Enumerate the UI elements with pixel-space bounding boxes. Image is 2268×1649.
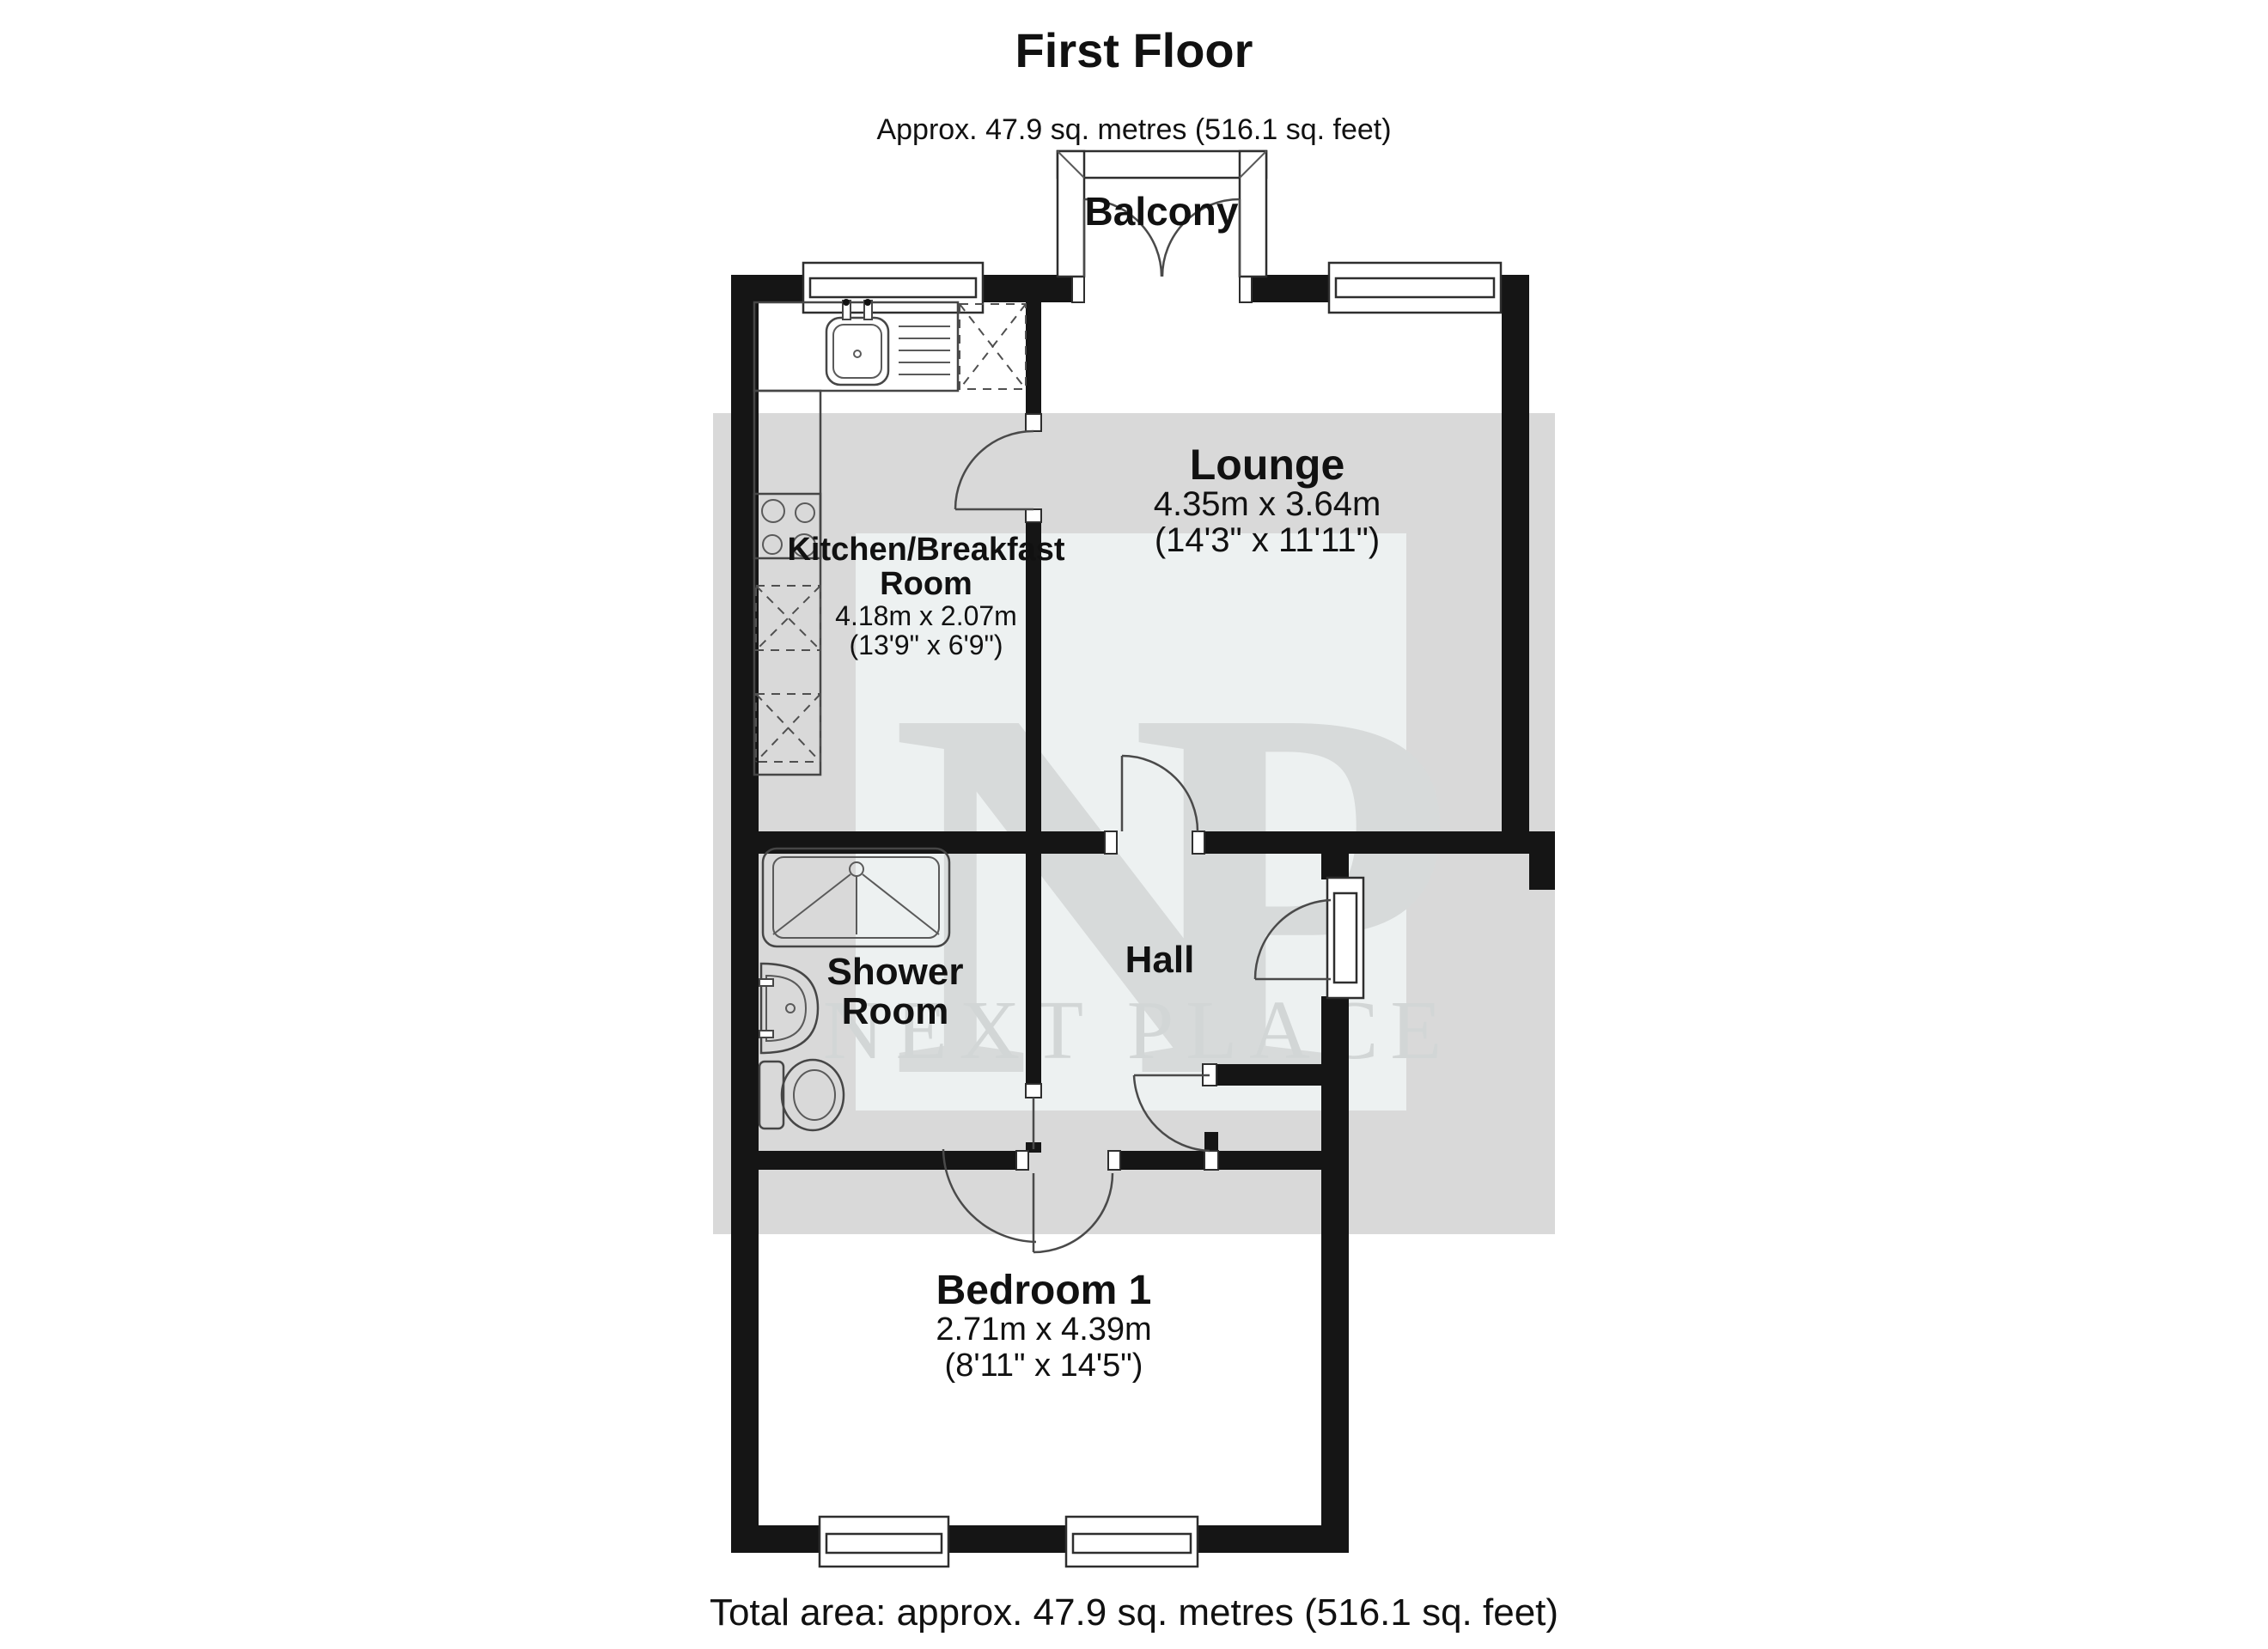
lounge-window [1329,263,1501,313]
shower-tray [763,849,949,946]
bedroom-window-2 [1066,1517,1198,1567]
page-title: First Floor [1015,23,1253,77]
svg-text:Bedroom 1: Bedroom 1 [936,1268,1152,1313]
floorplan-page: First Floor Approx. 47.9 sq. metres (516… [0,0,2268,1649]
svg-text:(13'9" x 6'9"): (13'9" x 6'9") [849,630,1003,660]
kitchen-counter-run [754,391,820,775]
svg-text:Room: Room [842,990,949,1032]
hall-label: Hall [1125,939,1195,981]
page-subtitle: Approx. 47.9 sq. metres (516.1 sq. feet) [876,113,1391,146]
watermark-letter-p: P [1130,599,1455,1188]
toilet [759,1060,844,1130]
bedroom-label: Bedroom 1 2.71m x 4.39m (8'11" x 14'5") [936,1268,1151,1384]
svg-text:Shower: Shower [827,951,964,993]
bedroom-window-1 [820,1517,948,1567]
svg-text:4.18m x 2.07m: 4.18m x 2.07m [835,600,1017,631]
svg-text:Lounge: Lounge [1190,441,1345,489]
svg-text:4.35m x 3.64m: 4.35m x 3.64m [1154,485,1381,523]
svg-text:Room: Room [880,566,972,602]
svg-text:(14'3" x 11'11"): (14'3" x 11'11") [1155,521,1380,559]
balcony-label: Balcony [1085,189,1239,234]
svg-text:2.71m x 4.39m: 2.71m x 4.39m [936,1311,1151,1348]
shower-room-label: Shower Room [827,951,964,1032]
svg-text:(8'11" x 14'5"): (8'11" x 14'5") [945,1348,1143,1384]
total-area-text: Total area: approx. 47.9 sq. metres (516… [710,1591,1558,1634]
floor-plan: First Floor Approx. 47.9 sq. metres (516… [0,0,2268,1649]
kitchen-appliance-top [960,304,1026,389]
svg-text:Kitchen/Breakfast: Kitchen/Breakfast [787,532,1064,568]
